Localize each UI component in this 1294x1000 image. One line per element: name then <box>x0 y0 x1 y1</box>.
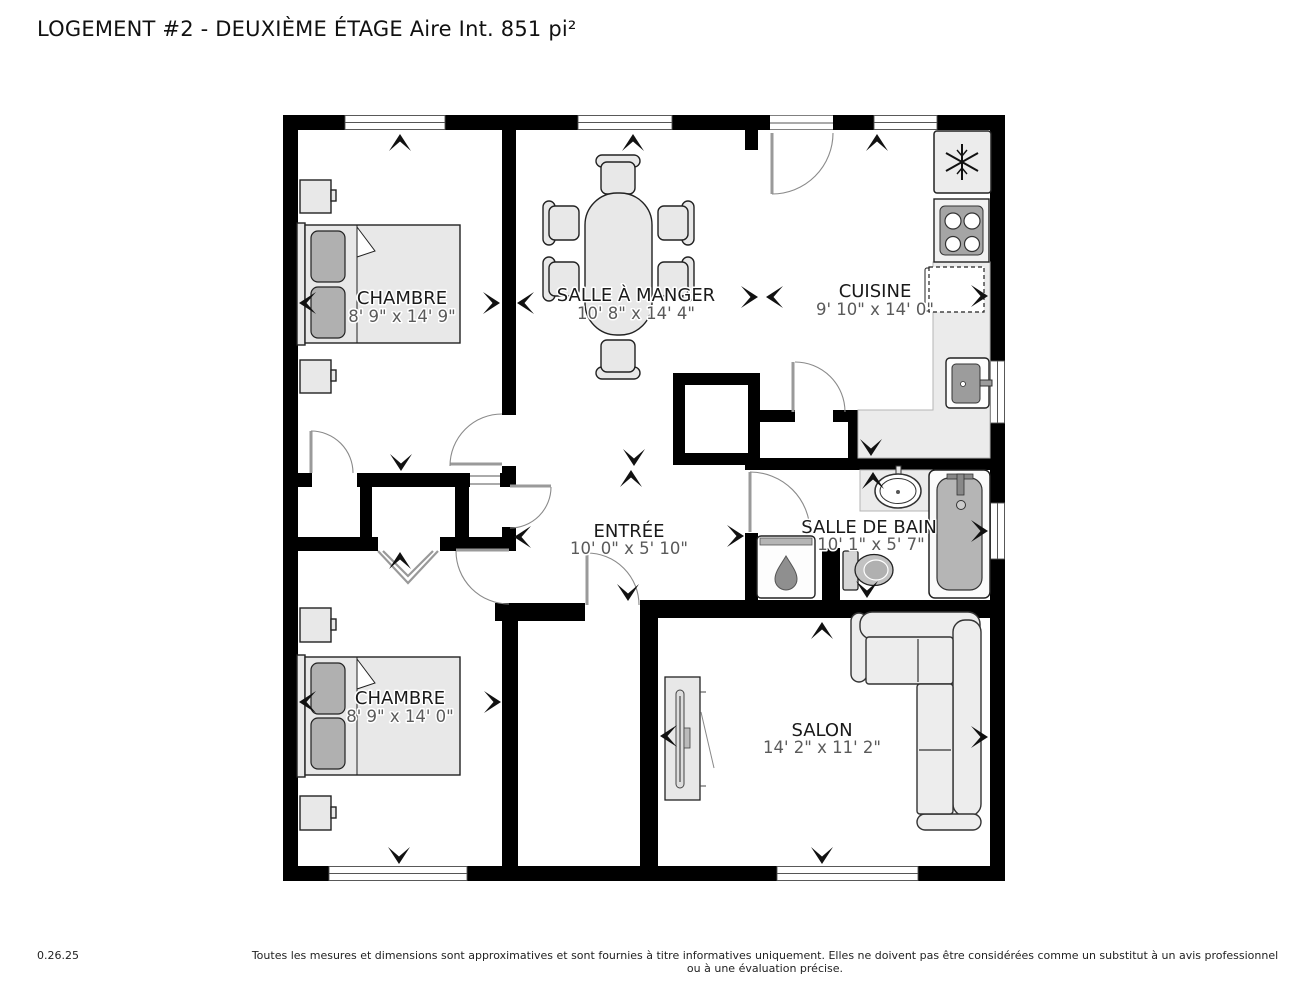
kitchen-sink <box>946 358 992 408</box>
room-label-chambre-2: CHAMBRE 8' 9" x 14' 0" <box>346 688 453 726</box>
fridge <box>934 131 991 193</box>
window-bedroom2 <box>329 867 467 881</box>
svg-text:10' 0" x 5' 10": 10' 0" x 5' 10" <box>570 539 688 558</box>
toilet <box>843 551 893 590</box>
room-label-chambre-1: CHAMBRE 8' 9" x 14' 9" <box>348 288 455 326</box>
doors <box>311 133 845 605</box>
dining-chair <box>596 155 640 194</box>
bifold-closet-doors <box>378 551 438 583</box>
window-salon <box>777 867 918 881</box>
sofa-sectional <box>851 612 981 830</box>
water-heater <box>757 536 815 598</box>
svg-text:14' 2" x 11' 2": 14' 2" x 11' 2" <box>763 738 881 757</box>
door-kitchen-closet <box>793 362 845 412</box>
svg-text:10' 1" x 5' 7": 10' 1" x 5' 7" <box>817 535 924 554</box>
svg-text:10' 8" x 14' 4": 10' 8" x 14' 4" <box>577 304 695 323</box>
door-balcony <box>772 133 833 194</box>
window-bathroom <box>991 503 1005 559</box>
svg-text:8' 9" x 14' 0": 8' 9" x 14' 0" <box>346 707 453 726</box>
floorplan-page: LOGEMENT #2 - DEUXIÈME ÉTAGE Aire Int. 8… <box>0 0 1294 1000</box>
bathroom-vanity <box>860 466 933 511</box>
dining-chair <box>658 201 694 245</box>
svg-text:CHAMBRE: CHAMBRE <box>357 288 447 309</box>
door-bedroom1-closet <box>311 431 353 473</box>
window-kitchen-sink <box>991 361 1005 423</box>
nightstand <box>300 360 336 393</box>
version-label: 0.26.25 <box>37 949 79 962</box>
window-kitchen <box>874 116 937 130</box>
nightstand <box>300 608 336 642</box>
svg-text:8' 9" x 14' 9": 8' 9" x 14' 9" <box>348 307 455 326</box>
nightstand <box>300 180 336 213</box>
svg-text:CUISINE: CUISINE <box>839 281 912 302</box>
room-label-salon: SALON 14' 2" x 11' 2" <box>763 720 881 757</box>
floor-plan: CHAMBRE 8' 9" x 14' 9" SALLE À MANGER 10… <box>0 0 1294 1000</box>
room-label-cuisine: CUISINE 9' 10" x 14' 0" <box>816 281 934 319</box>
disclaimer-text: Toutes les mesures et dimensions sont ap… <box>250 949 1280 975</box>
closet-pass-through <box>470 476 500 484</box>
door-bedroom2 <box>456 550 509 604</box>
dining-chair <box>543 201 579 245</box>
door-entry <box>587 553 639 605</box>
room-label-entree: ENTRÉE 10' 0" x 5' 10" <box>570 520 688 558</box>
window-dining <box>578 116 672 130</box>
bed-bedroom1 <box>297 223 460 345</box>
tv-stand <box>665 677 714 800</box>
dining-chair <box>596 340 640 379</box>
window-bedroom1 <box>345 116 445 130</box>
room-label-salle-de-bain: SALLE DE BAIN 10' 1" x 5' 7" <box>801 517 937 554</box>
room-label-salle-a-manger: SALLE À MANGER 10' 8" x 14' 4" <box>557 284 715 323</box>
door-bedroom1 <box>450 414 502 466</box>
svg-text:SALLE À MANGER: SALLE À MANGER <box>557 284 715 306</box>
svg-text:CHAMBRE: CHAMBRE <box>355 688 445 709</box>
nightstand <box>300 796 336 830</box>
svg-text:9' 10" x 14' 0": 9' 10" x 14' 0" <box>816 300 934 319</box>
stove <box>934 199 989 262</box>
door-hall-closet <box>510 486 551 528</box>
